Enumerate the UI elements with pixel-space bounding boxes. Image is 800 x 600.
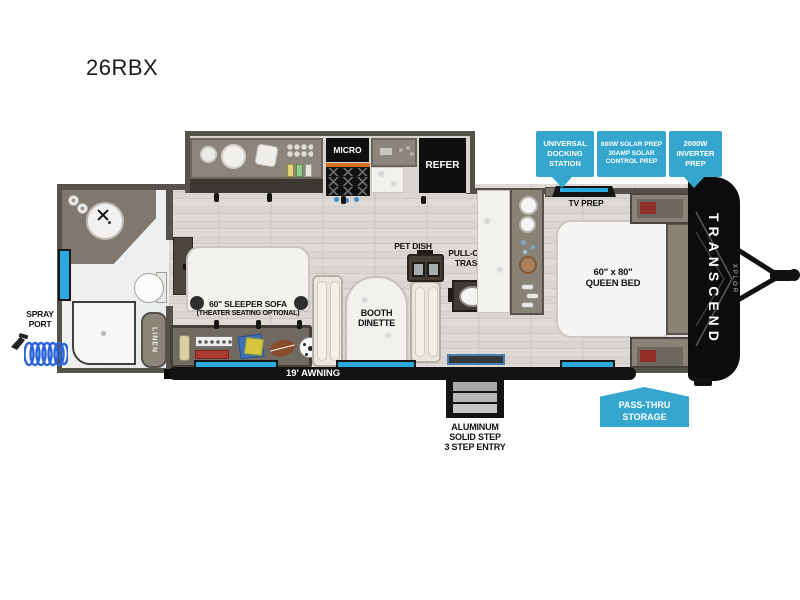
callout-solar-prep: 600W SOLAR PREP 30AMP SOLAR CONTROL PREP bbox=[597, 131, 666, 177]
knob-icon bbox=[410, 152, 414, 156]
entry-steps bbox=[446, 380, 504, 418]
cards-icon bbox=[244, 337, 264, 356]
dish-rack-icon bbox=[296, 164, 303, 177]
button-icon bbox=[521, 302, 534, 308]
decor-dot bbox=[531, 245, 535, 249]
queen-bed: 60" x 80" QUEEN BED bbox=[556, 220, 670, 338]
appliance-icon bbox=[379, 147, 393, 156]
nightstand bbox=[630, 337, 690, 368]
callout-docking-station: UNIVERSAL DOCKING STATION bbox=[536, 131, 594, 177]
decor-item bbox=[640, 350, 656, 362]
callout-pointer bbox=[683, 176, 705, 188]
lower-cabinet-shadow bbox=[190, 179, 323, 193]
dinette-label: BOOTH DINETTE bbox=[345, 308, 408, 328]
nightstand bbox=[630, 193, 690, 224]
linen-label: LINEN bbox=[151, 327, 158, 353]
bowl-icon bbox=[519, 256, 537, 274]
drain-dot bbox=[108, 221, 111, 224]
callout-inverter-prep: 2000W INVERTER PREP bbox=[669, 131, 722, 177]
page-title: 26RBX bbox=[86, 56, 206, 81]
dinette-bench-right bbox=[410, 281, 441, 363]
stabilizer-jack bbox=[694, 378, 712, 386]
peninsula-cabinet bbox=[510, 188, 544, 315]
football-icon bbox=[268, 337, 296, 359]
brand-logo: TRANSCEND bbox=[706, 213, 722, 346]
burner-icon bbox=[327, 168, 340, 176]
tv-screen bbox=[560, 188, 608, 192]
shower bbox=[72, 301, 136, 365]
hitch-icon bbox=[736, 228, 800, 314]
hose-coil-icon bbox=[24, 340, 68, 368]
callout-pass-thru: PASS-THRU STORAGE bbox=[600, 387, 689, 427]
decor-dot bbox=[523, 250, 527, 254]
floorplan-canvas: 26RBX MICRO REFER bbox=[0, 0, 800, 600]
bathroom-sink-icon bbox=[86, 202, 124, 240]
peninsula-counter bbox=[477, 190, 510, 313]
bathroom-wall-upper bbox=[166, 190, 173, 240]
cutting-board-icon bbox=[254, 143, 278, 167]
stove-icon bbox=[326, 167, 370, 196]
sink-icon bbox=[519, 216, 536, 233]
sofa-label: 60" SLEEPER SOFA bbox=[178, 300, 318, 310]
step-tread bbox=[453, 393, 497, 402]
awning-label: 19' AWNING bbox=[286, 368, 340, 379]
spice-rack-icon bbox=[287, 144, 313, 158]
spray-port-label: SPRAY PORT bbox=[14, 310, 66, 329]
refrigerator: REFER bbox=[419, 138, 466, 193]
hinge-tick bbox=[421, 196, 426, 204]
burner-icon bbox=[341, 177, 354, 185]
dish-rack-icon bbox=[305, 164, 312, 177]
burner-icon bbox=[356, 177, 369, 185]
plate-icon bbox=[200, 146, 217, 163]
sink-icon bbox=[519, 196, 538, 215]
burner-icon bbox=[341, 187, 354, 195]
front-cap: TRANSCEND XPLOR bbox=[688, 177, 740, 381]
stove-knob bbox=[354, 197, 359, 202]
hinge-tick bbox=[256, 320, 261, 329]
bathroom-window bbox=[58, 249, 71, 301]
microwave-label: MICRO bbox=[333, 145, 361, 155]
tv-prep-label: TV PREP bbox=[558, 199, 614, 209]
burner-icon bbox=[327, 177, 340, 185]
bench-cushion bbox=[330, 281, 340, 361]
burner-icon bbox=[341, 168, 354, 176]
stove-knob bbox=[334, 197, 339, 202]
step-tread bbox=[453, 382, 497, 391]
knob-icon bbox=[399, 148, 403, 152]
button-icon bbox=[526, 293, 539, 299]
hinge-tick bbox=[297, 320, 302, 329]
burner-icon bbox=[327, 187, 340, 195]
bench-cushion bbox=[428, 287, 438, 357]
game-box-icon bbox=[195, 336, 233, 347]
counter-extension bbox=[371, 167, 404, 193]
bottle-icon bbox=[179, 335, 190, 361]
game-box-icon bbox=[195, 350, 229, 359]
kitchen-counter bbox=[190, 138, 323, 179]
refrigerator-label: REFER bbox=[426, 160, 460, 171]
dish-rack-icon bbox=[287, 164, 294, 177]
tp-roll-icon bbox=[77, 203, 88, 214]
decor-item bbox=[640, 202, 656, 214]
hinge-tick bbox=[341, 196, 346, 204]
hinge-tick bbox=[267, 193, 272, 202]
button-icon bbox=[521, 284, 534, 290]
hinge-tick bbox=[214, 320, 219, 329]
dinette-bench-left bbox=[312, 275, 343, 367]
hinge-tick bbox=[214, 193, 219, 202]
steps-label: ALUMINUM SOLID STEP 3 STEP ENTRY bbox=[418, 422, 532, 452]
decor-dot bbox=[521, 240, 526, 245]
awning-bar: 19' AWNING bbox=[168, 367, 636, 380]
burner-icon bbox=[356, 168, 369, 176]
prep-counter bbox=[371, 138, 417, 167]
pet-bowl-icon bbox=[412, 262, 425, 277]
bed-label: 60" x 80" QUEEN BED bbox=[586, 268, 641, 289]
knob-icon bbox=[406, 146, 410, 150]
bench-cushion bbox=[415, 287, 425, 357]
step-tread bbox=[453, 404, 497, 413]
headboard bbox=[666, 223, 690, 335]
entry-mat bbox=[447, 354, 505, 365]
burner-icon bbox=[356, 187, 369, 195]
sofa-option-label: (THEATER SEATING OPTIONAL) bbox=[166, 310, 330, 318]
sink-icon bbox=[221, 144, 246, 169]
shower-drain-icon bbox=[101, 331, 106, 336]
pet-dish-label: PET DISH bbox=[384, 242, 442, 252]
callout-pointer bbox=[551, 176, 573, 188]
bench-cushion bbox=[317, 281, 327, 361]
linen-cabinet: LINEN bbox=[141, 312, 167, 368]
microwave: MICRO bbox=[326, 138, 369, 162]
toilet-icon bbox=[134, 273, 164, 303]
